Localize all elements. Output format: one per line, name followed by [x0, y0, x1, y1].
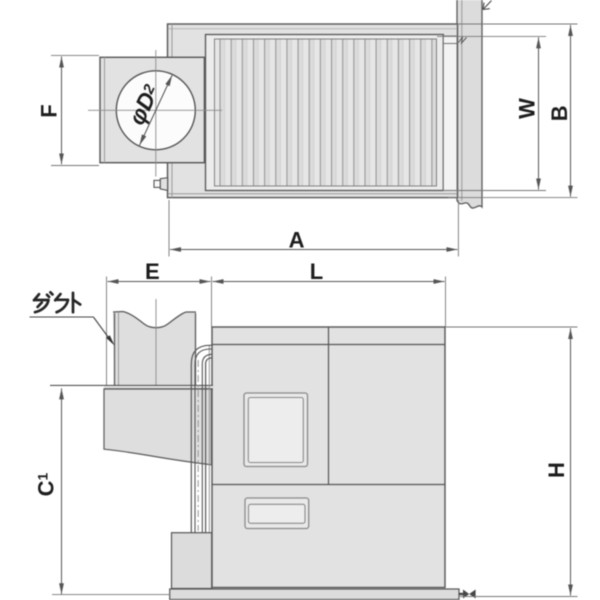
svg-text:C1: C1 — [33, 472, 58, 496]
svg-text:W: W — [515, 98, 540, 119]
svg-text:F: F — [37, 104, 62, 117]
svg-text:B: B — [547, 105, 572, 121]
svg-text:E: E — [145, 259, 160, 284]
svg-text:A: A — [289, 228, 305, 253]
svg-text:L: L — [310, 259, 323, 284]
svg-text:H: H — [544, 462, 569, 478]
